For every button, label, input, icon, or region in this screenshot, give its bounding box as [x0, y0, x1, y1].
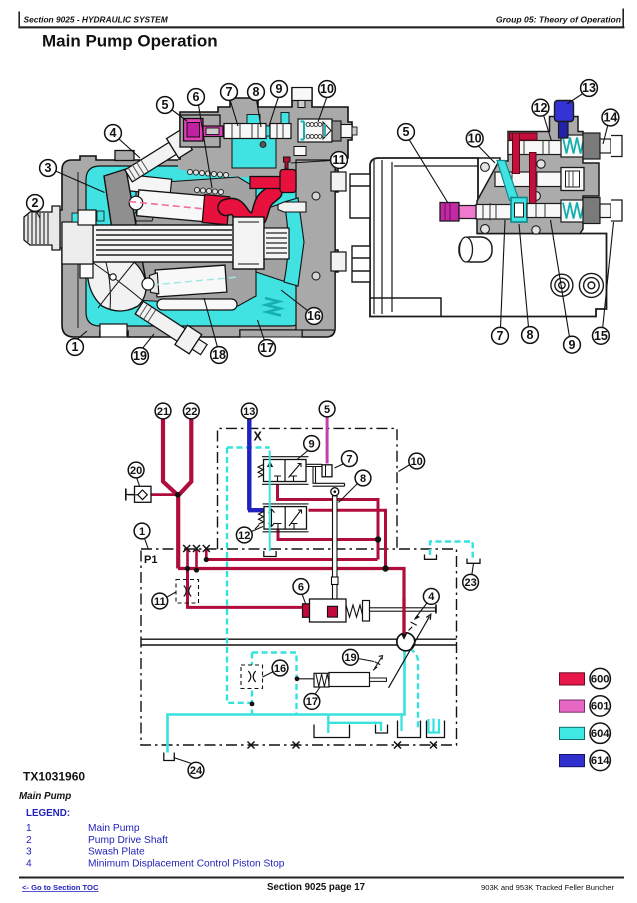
svg-text:601: 601	[591, 701, 610, 713]
svg-text:17: 17	[306, 696, 318, 708]
svg-text:5: 5	[324, 404, 330, 416]
svg-text:17: 17	[260, 341, 274, 355]
svg-text:24: 24	[190, 765, 203, 777]
svg-text:16: 16	[274, 663, 286, 675]
svg-text:1: 1	[26, 823, 32, 834]
svg-text:4: 4	[428, 591, 435, 603]
svg-text:6: 6	[298, 581, 304, 593]
svg-text:5: 5	[403, 125, 410, 139]
svg-text:10: 10	[320, 82, 334, 96]
svg-text:Main Pump Operation: Main Pump Operation	[42, 32, 218, 51]
svg-text:10: 10	[411, 456, 423, 468]
svg-text:15: 15	[594, 329, 608, 343]
svg-text:12: 12	[534, 101, 548, 115]
svg-text:Main Pump: Main Pump	[88, 823, 140, 834]
svg-text:Section 9025 - HYDRAULIC SYSTE: Section 9025 - HYDRAULIC SYSTEM	[24, 14, 169, 24]
svg-text:Section 9025 page 17: Section 9025 page 17	[267, 882, 365, 893]
svg-text:22: 22	[185, 406, 197, 418]
svg-text:23: 23	[464, 577, 476, 589]
svg-text:1: 1	[72, 340, 79, 354]
svg-text:9: 9	[276, 82, 283, 96]
svg-text:Main Pump: Main Pump	[19, 791, 71, 802]
svg-text:3: 3	[26, 847, 32, 858]
svg-text:<- Go to Section TOC: <- Go to Section TOC	[22, 883, 99, 892]
svg-text:9: 9	[309, 438, 315, 450]
svg-text:Group 05: Theory of Operation: Group 05: Theory of Operation	[496, 14, 621, 24]
svg-text:604: 604	[591, 728, 610, 740]
svg-text:3: 3	[45, 161, 52, 175]
svg-text:X: X	[254, 430, 263, 444]
svg-text:2: 2	[26, 835, 32, 846]
svg-text:5: 5	[162, 98, 169, 112]
svg-text:LEGEND:: LEGEND:	[26, 808, 70, 819]
svg-text:903K and 953K Tracked Feller B: 903K and 953K Tracked Feller Buncher	[481, 883, 614, 892]
svg-text:13: 13	[582, 81, 596, 95]
svg-text:600: 600	[591, 673, 610, 685]
svg-text:12: 12	[238, 530, 250, 542]
svg-text:18: 18	[212, 348, 226, 362]
svg-text:Pump Drive Shaft: Pump Drive Shaft	[88, 835, 168, 846]
svg-text:11: 11	[332, 153, 345, 167]
svg-text:8: 8	[360, 473, 366, 485]
svg-text:TX1031960: TX1031960	[23, 770, 85, 784]
svg-text:2: 2	[32, 196, 39, 210]
svg-text:8: 8	[527, 328, 534, 342]
svg-text:19: 19	[344, 652, 356, 664]
svg-text:4: 4	[26, 858, 32, 869]
svg-text:7: 7	[226, 85, 233, 99]
svg-text:9: 9	[569, 338, 576, 352]
svg-text:Minimum Displacement Control P: Minimum Displacement Control Piston Stop	[88, 858, 285, 869]
svg-text:6: 6	[193, 90, 200, 104]
svg-text:10: 10	[468, 132, 482, 146]
svg-text:8: 8	[253, 85, 260, 99]
svg-text:614: 614	[591, 755, 610, 767]
svg-text:20: 20	[130, 465, 142, 477]
svg-text:14: 14	[603, 111, 617, 125]
svg-text:13: 13	[243, 406, 255, 418]
svg-text:1: 1	[139, 526, 145, 538]
svg-text:P1: P1	[144, 554, 157, 566]
svg-text:16: 16	[307, 309, 321, 323]
svg-text:11: 11	[154, 596, 166, 608]
svg-text:Swash Plate: Swash Plate	[88, 847, 145, 858]
svg-text:7: 7	[497, 329, 504, 343]
svg-text:21: 21	[157, 406, 169, 418]
svg-text:19: 19	[133, 349, 147, 363]
svg-text:4: 4	[110, 126, 117, 140]
svg-text:7: 7	[346, 453, 352, 465]
